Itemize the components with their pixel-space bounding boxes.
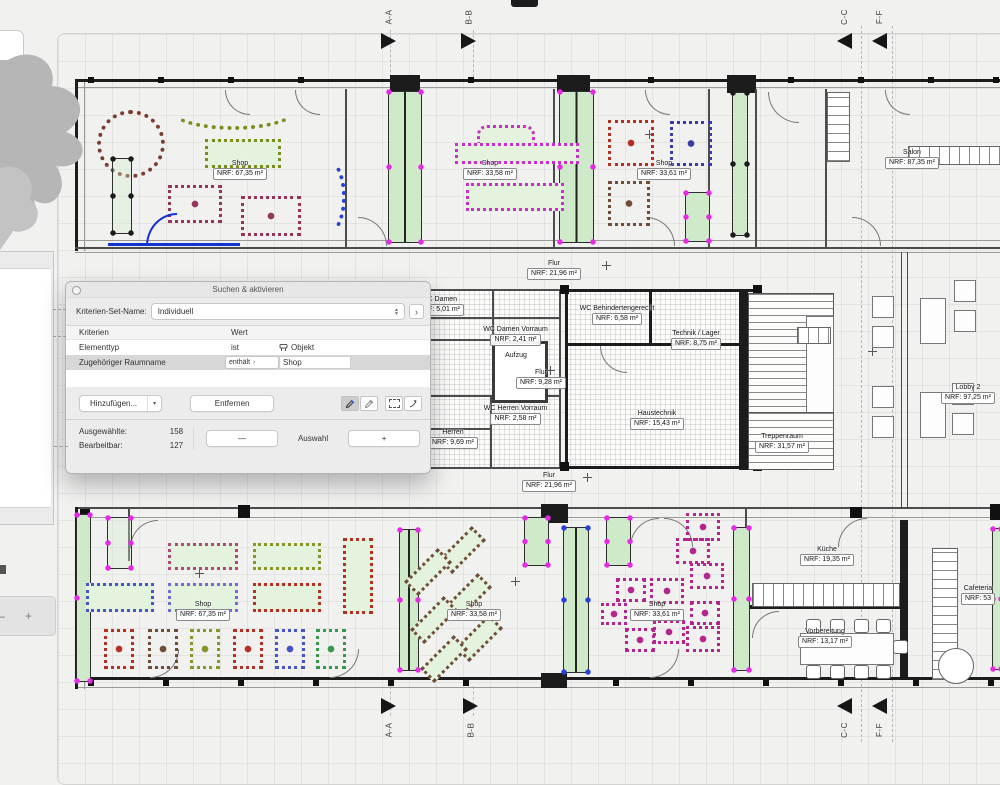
operator-dropdown[interactable]: enthält [225,356,279,369]
wall [755,89,757,247]
section-marker-bb-bottom[interactable]: B-B [459,698,481,743]
selected-element[interactable] [107,517,132,569]
criteria-set-value: Individuell [158,307,194,316]
section-marker-cc-top[interactable]: C-C [833,4,855,49]
palette-body [0,268,51,508]
table-group-symbol[interactable] [190,629,220,669]
zoom-toolbar: — + [0,596,56,636]
criteria-value-input[interactable]: Shop [279,356,351,369]
site-plan-thumbnail [0,48,100,260]
lobby-chair-symbol[interactable] [954,280,976,302]
selected-element[interactable] [399,529,419,671]
table-group-symbol[interactable] [316,629,346,669]
table-group-symbol[interactable] [625,628,655,652]
selected-element[interactable] [732,92,748,236]
section-arrow-icon [461,33,476,49]
table-group-symbol[interactable] [466,183,564,211]
room-label[interactable]: WC Damen VorraumNRF: 2,41 m² [468,326,563,346]
section-marker-cc-bottom[interactable]: C-C [833,698,855,743]
section-line [54,446,68,447]
room-label[interactable]: SalonNRF: 87,35 m² [873,149,951,169]
table-group-symbol[interactable] [253,543,321,570]
table-group-symbol[interactable] [686,513,720,541]
table-group-symbol[interactable] [275,629,305,669]
room-label[interactable]: TreppenraumNRF: 31,57 m² [742,433,822,453]
column-header-criteria: Kriterien [66,328,231,337]
room-label[interactable]: ShopNRF: 33,61 m² [612,601,702,621]
room-label[interactable]: FlurNRF: 21,96 m² [510,260,598,280]
wall [75,87,1000,88]
table-group-symbol[interactable] [241,196,301,236]
selected-element[interactable] [606,517,631,566]
remove-criteria-button[interactable]: Entfernen [190,395,274,412]
room-label[interactable]: Technik / LagerNRF: 8,75 m² [660,330,732,350]
find-select-dialog: Suchen & aktivieren Kriterien-Set-Name: … [65,281,431,474]
section-arrow-icon [872,33,887,49]
section-marker-ff-top[interactable]: F-F [868,4,890,49]
zoom-out-button[interactable]: — [0,610,5,622]
curved-seating-symbol[interactable] [168,88,298,130]
eyedropper-icon [345,399,355,409]
section-marker-ff-bottom[interactable]: F-F [868,698,890,743]
criteria-row-raumname[interactable]: Zugehöriger Raumname enthält Shop [66,355,430,370]
room-label[interactable]: VorbereitungNRF: 13,17 m² [780,628,870,648]
room-label[interactable]: CafeteriaNRF: 53 [938,585,1000,605]
lobby-table-symbol[interactable] [920,298,946,344]
section-arrow-icon [872,698,887,714]
add-menu-icon[interactable]: ▾ [148,400,161,407]
room-label[interactable]: KücheNRF: 19,35 m² [782,546,872,566]
object-icon [279,343,288,352]
room-label[interactable]: ShopNRF: 67,35 m² [200,160,280,180]
archicad-floorplan-view: { "dialog": { "title": "Suchen & aktivie… [0,0,1000,766]
radiator-symbol[interactable] [797,327,831,344]
selection-stats: Ausgewählte: 158 Bearbeitbar: 127 [79,427,194,450]
section-line [53,336,66,337]
selected-count-value: 158 [170,427,183,436]
center-mark [511,577,520,586]
column [541,673,567,688]
section-marker-bb-top[interactable]: B-B [457,4,479,49]
room-label[interactable]: WC BehindertengerechtNRF: 6,58 m² [563,305,671,325]
room-label[interactable]: HaustechnikNRF: 15,43 m² [612,410,702,430]
marquee-icon [389,399,400,408]
selected-element[interactable] [524,517,549,566]
table-group-symbol[interactable] [686,626,720,652]
table-group-symbol[interactable] [690,563,724,589]
zoom-in-button[interactable]: + [25,610,32,622]
arrow-tool-button[interactable] [404,396,422,411]
curved-seating-symbol[interactable] [308,158,346,236]
pickup-settings-button[interactable] [341,396,359,411]
room-label[interactable]: ShopNRF: 67,35 m² [158,601,248,621]
disclosure-button[interactable]: › [409,304,424,319]
table-group-symbol[interactable] [608,181,650,226]
section-arrow-icon [381,33,396,49]
table-group-symbol[interactable] [168,543,238,570]
section-line [53,309,66,310]
table-group-symbol[interactable] [676,538,710,564]
editable-count-label: Bearbeitbar: [79,441,170,450]
add-criteria-button[interactable]: Hinzufügen... ▾ [79,395,162,412]
criteria-row-elementtyp[interactable]: Elementtyp ist Objekt [66,340,430,355]
wall [75,252,1000,253]
section-marker-aa-bottom[interactable]: A-A [377,698,399,743]
room-label[interactable]: Lobby 2NRF: 97,25 m² [928,384,1000,404]
selection-label: Auswahl [298,434,328,443]
selected-element[interactable] [563,527,589,673]
column-header-value: Wert [231,328,279,337]
table-group-symbol[interactable] [148,629,178,669]
center-mark [602,261,611,270]
center-mark [195,569,204,578]
center-mark [868,347,877,356]
section-marker-aa-top[interactable]: A-A [377,4,399,49]
room-label[interactable]: Aufzug [494,352,538,359]
stepper-icon [392,308,401,316]
wall [553,89,555,247]
selected-element[interactable] [685,192,710,242]
table-group-symbol[interactable] [104,629,134,669]
criteria-list: Kriterien Wert Elementtyp ist Objekt Zug… [66,325,430,387]
inject-settings-button[interactable] [360,396,378,411]
lobby-chair-symbol[interactable] [872,296,894,318]
wall [345,89,347,247]
section-arrow-icon [463,698,478,714]
lobby-chair-symbol[interactable] [954,310,976,332]
selected-element[interactable] [388,91,422,243]
table-group-symbol[interactable] [616,578,646,602]
room-label[interactable]: FlurNRF: 21,96 m² [505,472,593,492]
room-label[interactable]: FlurNRF: 9,28 m² [510,369,572,389]
edge-marker [0,565,6,574]
selected-element[interactable] [559,91,594,243]
close-icon[interactable] [72,286,81,295]
criteria-set-dropdown[interactable]: Individuell [151,303,405,320]
table-group-symbol[interactable] [86,583,154,612]
select-button[interactable]: + [348,430,420,447]
lobby-chair-symbol[interactable] [872,326,894,348]
selected-count-label: Ausgewählte: [79,427,170,436]
wall [75,247,1000,249]
lobby-chair-symbol[interactable] [872,386,894,408]
table-group-symbol[interactable] [653,620,685,644]
marquee-button[interactable] [385,396,403,411]
shelf-symbol[interactable] [827,92,850,162]
lobby-chair-symbol[interactable] [952,413,974,435]
room-label[interactable]: ShopNRF: 33,61 m² [625,160,703,180]
deselect-button[interactable]: — [206,430,278,447]
kitchen-counter-symbol[interactable] [752,583,900,607]
section-arrow-icon [381,698,396,714]
dialog-titlebar[interactable]: Suchen & aktivieren [66,282,430,298]
table-group-symbol[interactable] [343,538,373,614]
criteria-set-label: Kriterien-Set-Name: [76,307,147,316]
background-palette[interactable] [0,251,54,525]
selected-element[interactable] [112,158,132,234]
table-group-symbol[interactable] [233,629,263,669]
dialog-title: Suchen & aktivieren [212,285,283,294]
layout-tab-marker [511,0,538,7]
section-arrow-icon [837,33,852,49]
selected-element[interactable] [733,527,750,671]
room-label[interactable]: ShopNRF: 33,58 m² [428,601,520,621]
table-group-symbol[interactable] [253,583,321,612]
section-arrow-icon [837,698,852,714]
room-label[interactable]: WC Herren VorraumNRF: 2,58 m² [468,405,563,425]
editable-count-value: 127 [170,441,183,450]
lobby-chair-symbol[interactable] [872,416,894,438]
bent-arrow-icon [409,399,418,408]
round-table-symbol[interactable] [938,648,974,684]
syringe-icon [364,399,374,409]
room-label[interactable]: ShopNRF: 33,58 m² [450,160,530,180]
